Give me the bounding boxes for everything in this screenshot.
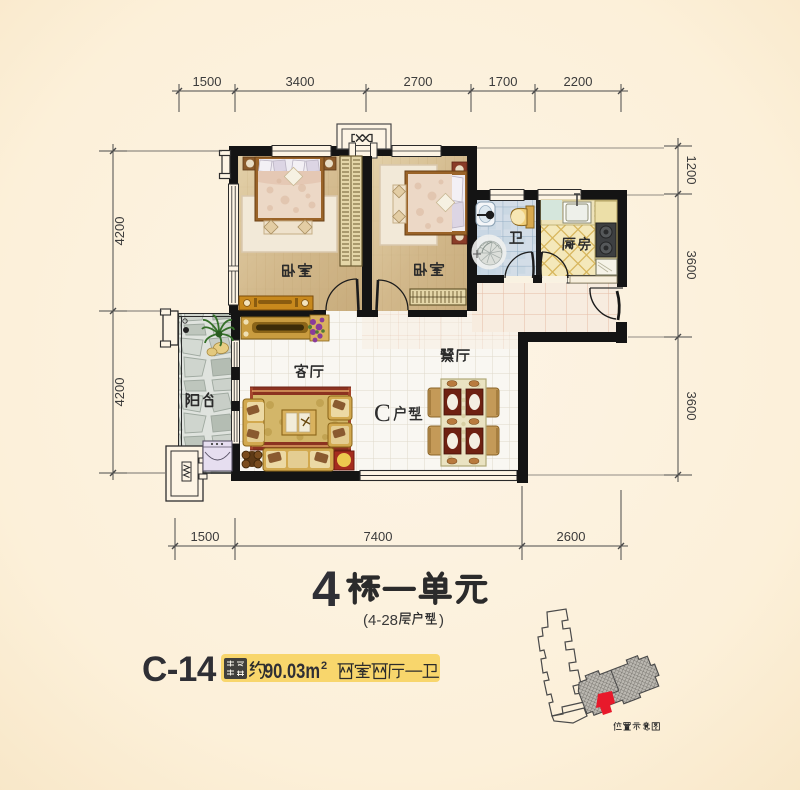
svg-text:90.03m: 90.03m xyxy=(264,660,320,683)
svg-text:2: 2 xyxy=(321,660,327,672)
svg-text:1200: 1200 xyxy=(684,156,699,185)
svg-text:3600: 3600 xyxy=(684,251,699,280)
svg-text:3600: 3600 xyxy=(684,392,699,421)
svg-text:4: 4 xyxy=(312,561,340,617)
svg-text:1500: 1500 xyxy=(193,74,222,89)
svg-text:C-14: C-14 xyxy=(142,650,217,689)
svg-text:4200: 4200 xyxy=(112,217,127,246)
svg-text:2200: 2200 xyxy=(564,74,593,89)
svg-text:1500: 1500 xyxy=(191,529,220,544)
svg-text:): ) xyxy=(439,612,444,629)
svg-text:7400: 7400 xyxy=(364,529,393,544)
svg-text:(4-28: (4-28 xyxy=(363,612,398,629)
svg-text:4200: 4200 xyxy=(112,378,127,407)
svg-text:1700: 1700 xyxy=(489,74,518,89)
svg-text:C: C xyxy=(374,400,391,427)
svg-text:3400: 3400 xyxy=(286,74,315,89)
svg-text:2700: 2700 xyxy=(404,74,433,89)
svg-text:2600: 2600 xyxy=(557,529,586,544)
